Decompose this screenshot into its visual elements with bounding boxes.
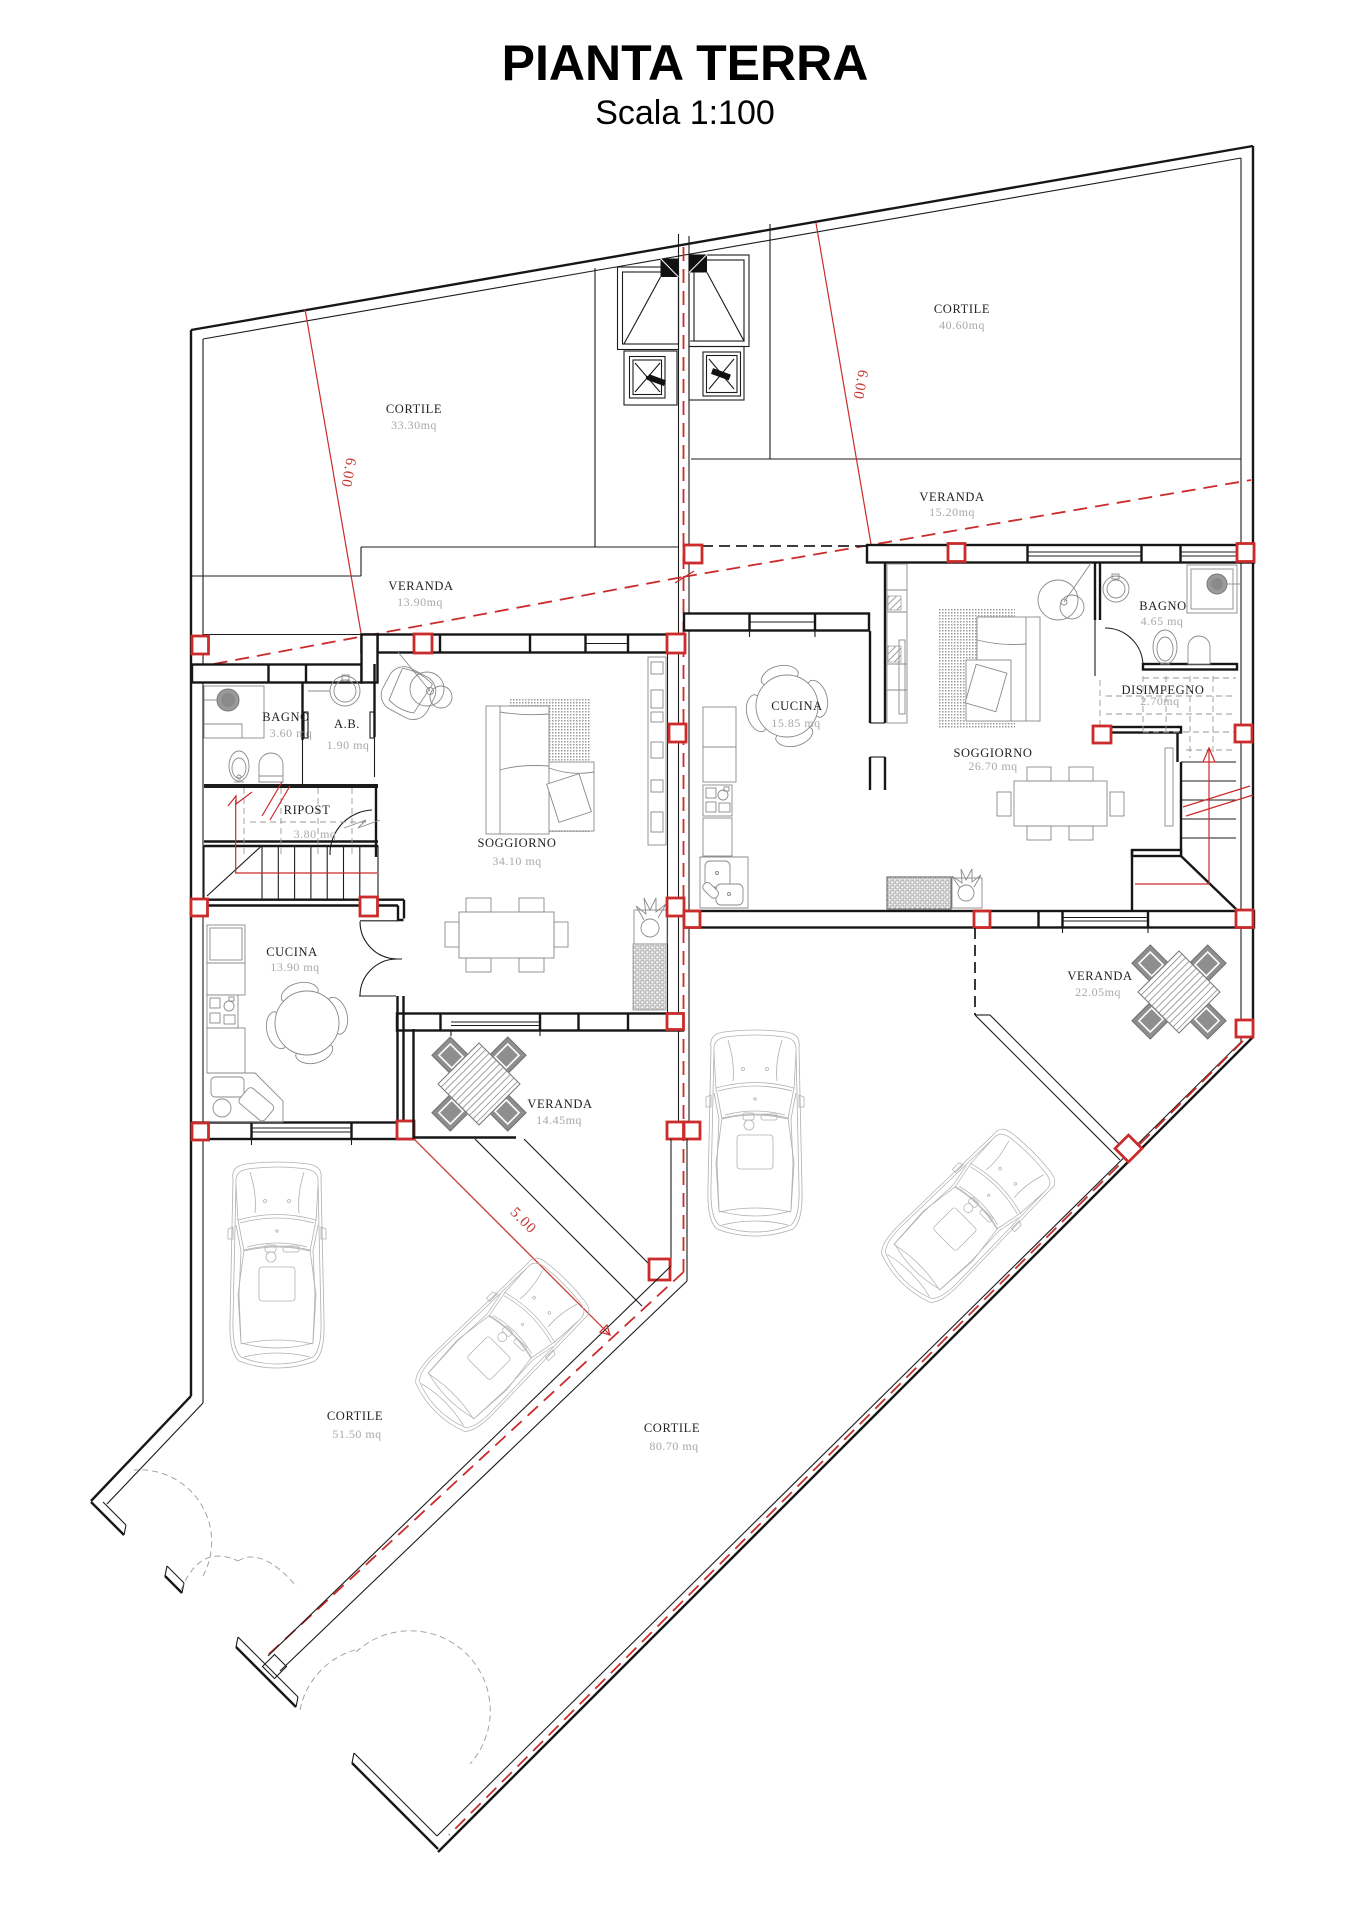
svg-text:CORTILE: CORTILE [327,1409,383,1423]
svg-text:3.80 mq: 3.80 mq [294,827,337,841]
svg-text:BAGNO: BAGNO [262,710,309,724]
svg-text:SOGGIORNO: SOGGIORNO [953,746,1032,760]
svg-text:CORTILE: CORTILE [644,1421,700,1435]
svg-text:BAGNO: BAGNO [1139,599,1186,613]
svg-text:CORTILE: CORTILE [386,402,442,416]
svg-text:SOGGIORNO: SOGGIORNO [477,836,556,850]
svg-text:13.90 mq: 13.90 mq [270,960,319,974]
svg-text:51.50 mq: 51.50 mq [332,1427,381,1441]
svg-text:VERANDA: VERANDA [527,1097,592,1111]
svg-text:A.B.: A.B. [334,717,360,731]
svg-text:CORTILE: CORTILE [934,302,990,316]
svg-text:VERANDA: VERANDA [1067,969,1132,983]
svg-text:Scala 1:100: Scala 1:100 [595,94,775,132]
svg-text:4.65 mq: 4.65 mq [1141,614,1184,628]
svg-text:15.85 mq: 15.85 mq [771,716,820,730]
svg-text:CUCINA: CUCINA [266,945,318,959]
svg-text:14.45mq: 14.45mq [536,1113,582,1127]
svg-text:VERANDA: VERANDA [919,490,984,504]
svg-text:CUCINA: CUCINA [771,699,823,713]
svg-text:34.10 mq: 34.10 mq [492,854,541,868]
svg-text:1.90 mq: 1.90 mq [327,738,370,752]
svg-text:80.70 mq: 80.70 mq [649,1439,698,1453]
svg-text:40.60mq: 40.60mq [939,318,985,332]
svg-text:22.05mq: 22.05mq [1075,985,1121,999]
svg-text:PIANTA TERRA: PIANTA TERRA [502,35,869,91]
svg-text:15.20mq: 15.20mq [929,505,975,519]
svg-text:RIPOST: RIPOST [284,803,331,817]
svg-text:VERANDA: VERANDA [388,579,453,593]
svg-text:13.90mq: 13.90mq [397,595,443,609]
svg-text:33.30mq: 33.30mq [391,418,437,432]
svg-text:26.70 mq: 26.70 mq [968,759,1017,773]
